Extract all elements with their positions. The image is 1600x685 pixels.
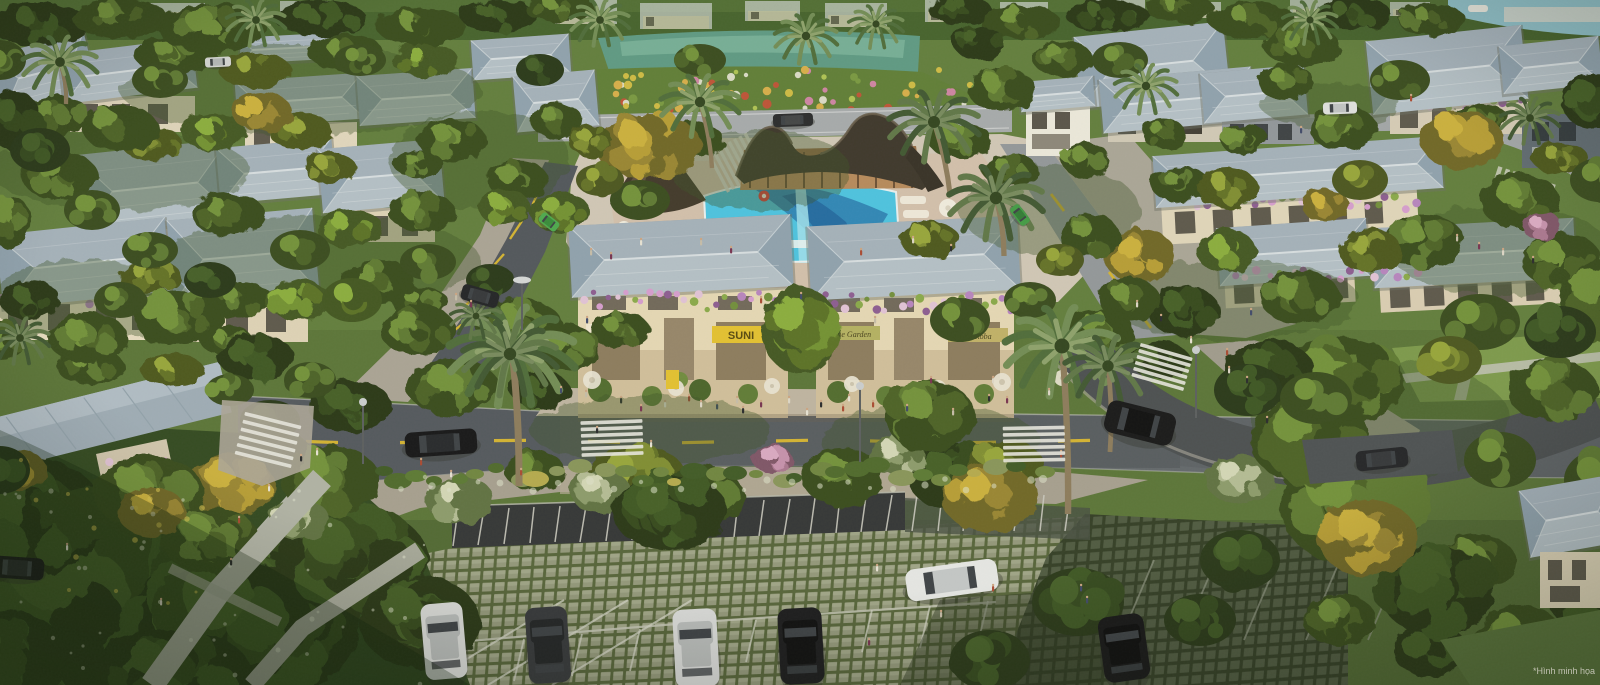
svg-text:*Hình minh họa: *Hình minh họa [1533,666,1595,676]
